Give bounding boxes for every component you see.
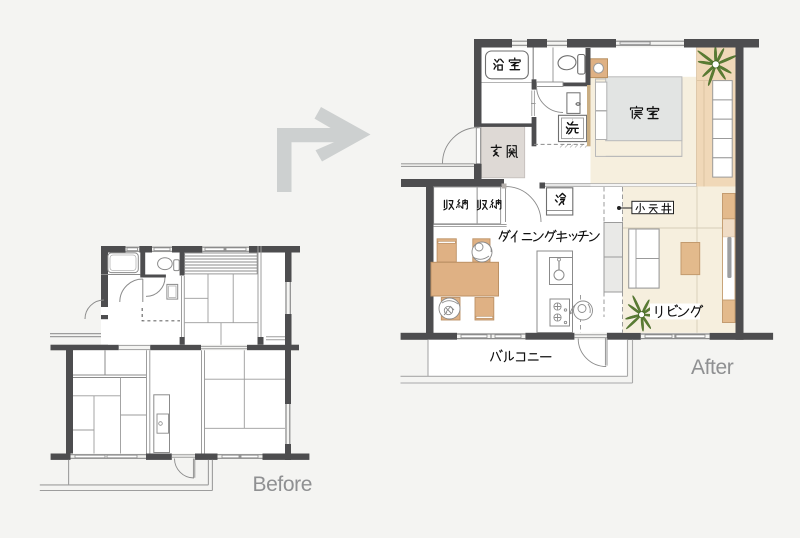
svg-text:After: After <box>691 356 734 379</box>
svg-text:Before: Before <box>253 473 312 496</box>
